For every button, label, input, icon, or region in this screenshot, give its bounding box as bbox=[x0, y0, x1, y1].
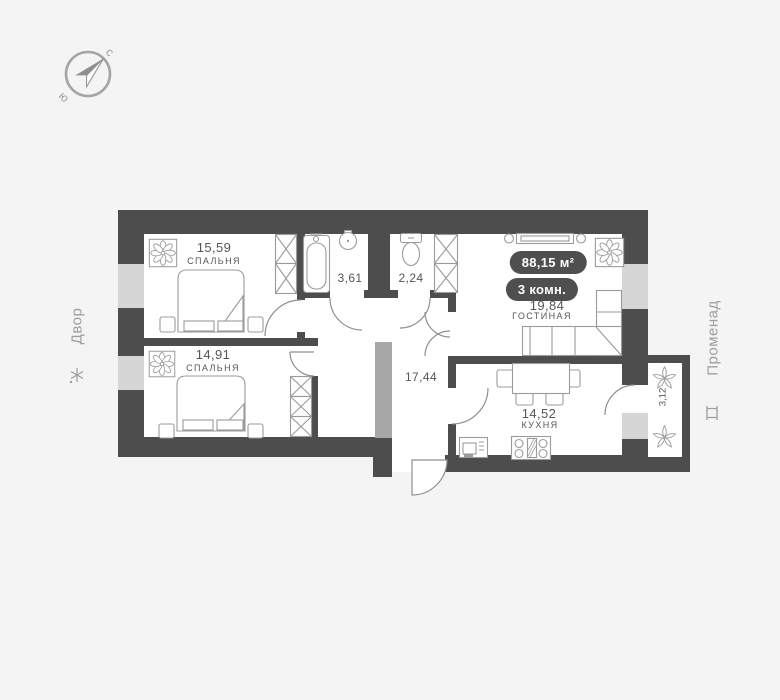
surroundings-left-label: Двор bbox=[70, 308, 85, 345]
floorplan-screen: с ю Двор Променад 15,59 СПАЛЬНЯ 14,91 СП… bbox=[0, 0, 780, 700]
bedroom1-area: 15,59 bbox=[197, 241, 232, 254]
bedroom2-name: СПАЛЬНЯ bbox=[186, 364, 240, 373]
opening-balcony-door bbox=[622, 385, 648, 413]
wall-living-west-stub bbox=[448, 298, 456, 312]
wall-kitchen-west-upper bbox=[448, 364, 456, 388]
wall-bathroom-west bbox=[297, 234, 305, 300]
wall-bottom-left bbox=[118, 437, 392, 457]
compass-south-label: ю bbox=[57, 90, 72, 105]
window-living bbox=[622, 264, 648, 309]
compass-north-label: с bbox=[104, 46, 117, 59]
wc-area: 2,24 bbox=[399, 272, 424, 284]
wall-hall-top-a bbox=[305, 290, 330, 298]
tree-icon bbox=[70, 368, 83, 383]
wall-entry-step bbox=[373, 437, 392, 477]
wall-bath-wc-divider bbox=[368, 234, 390, 298]
balcony-area: 3,12 bbox=[658, 388, 668, 407]
compass-icon bbox=[66, 52, 110, 96]
window-bedroom1 bbox=[118, 264, 144, 308]
window-bedroom2 bbox=[118, 356, 144, 390]
wall-bedroom2-east bbox=[310, 376, 318, 437]
wall-bedrooms-divider bbox=[144, 338, 318, 346]
floor-entry bbox=[392, 437, 445, 472]
wall-kitchen-west-lower bbox=[448, 424, 456, 455]
bedroom1-name: СПАЛЬНЯ bbox=[187, 257, 241, 266]
wall-hall-partition bbox=[375, 342, 392, 438]
surroundings-right-label: Променад bbox=[706, 300, 721, 376]
kitchen-area: 14,52 bbox=[522, 407, 557, 420]
window-kitchen bbox=[622, 413, 648, 439]
bench-icon bbox=[707, 406, 717, 420]
hallway-area: 17,44 bbox=[405, 371, 437, 383]
living-name: ГОСТИНАЯ bbox=[512, 312, 572, 321]
wall-hall-top-b bbox=[364, 290, 398, 298]
floor-balcony bbox=[648, 363, 682, 457]
kitchen-name: КУХНЯ bbox=[521, 421, 558, 430]
wall-balcony-bottom bbox=[648, 457, 682, 472]
total-area-badge: 88,15 м² bbox=[510, 251, 587, 274]
wall-bottom-right bbox=[445, 455, 648, 472]
wall-balcony-right bbox=[682, 355, 690, 472]
bedroom2-area: 14,91 bbox=[196, 348, 231, 361]
wall-top bbox=[118, 210, 648, 234]
wall-living-kitchen-divider bbox=[448, 356, 622, 364]
wall-hall-top-c bbox=[430, 290, 456, 298]
bathroom-area: 3,61 bbox=[338, 272, 363, 284]
